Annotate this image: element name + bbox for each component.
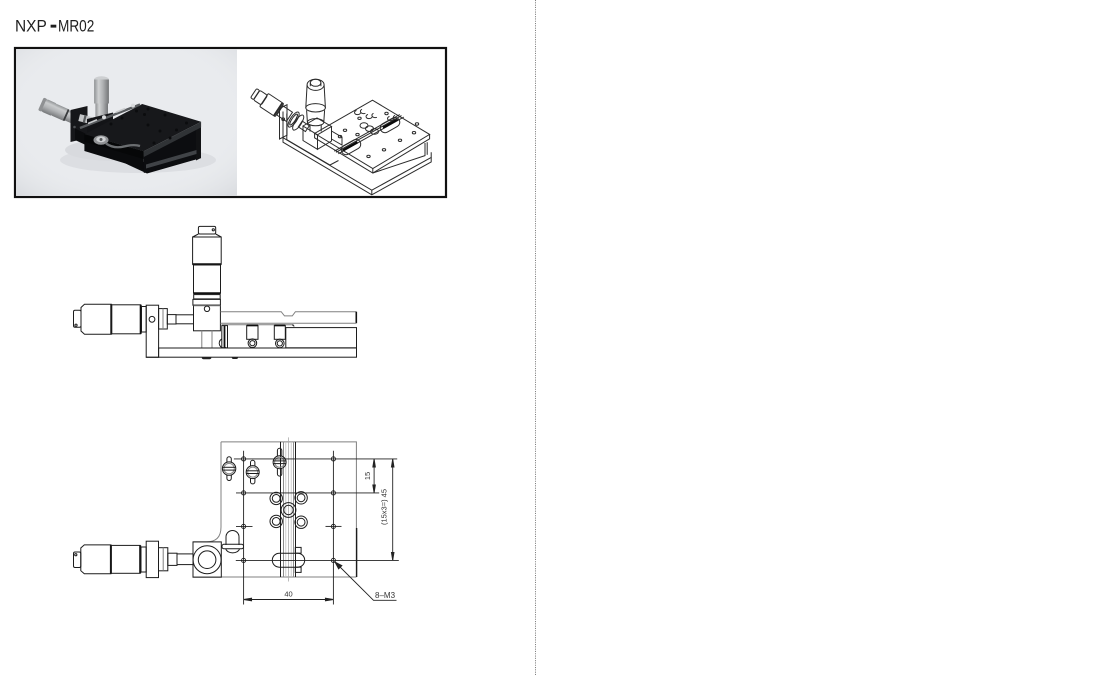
svg-text:8–M3: 8–M3 [375,591,396,600]
svg-text:MR02: MR02 [58,18,94,36]
svg-text:NXP: NXP [15,18,47,36]
svg-text:40: 40 [284,590,292,599]
svg-text:15: 15 [363,472,372,480]
svg-text:(15x3=) 45: (15x3=) 45 [380,489,389,525]
